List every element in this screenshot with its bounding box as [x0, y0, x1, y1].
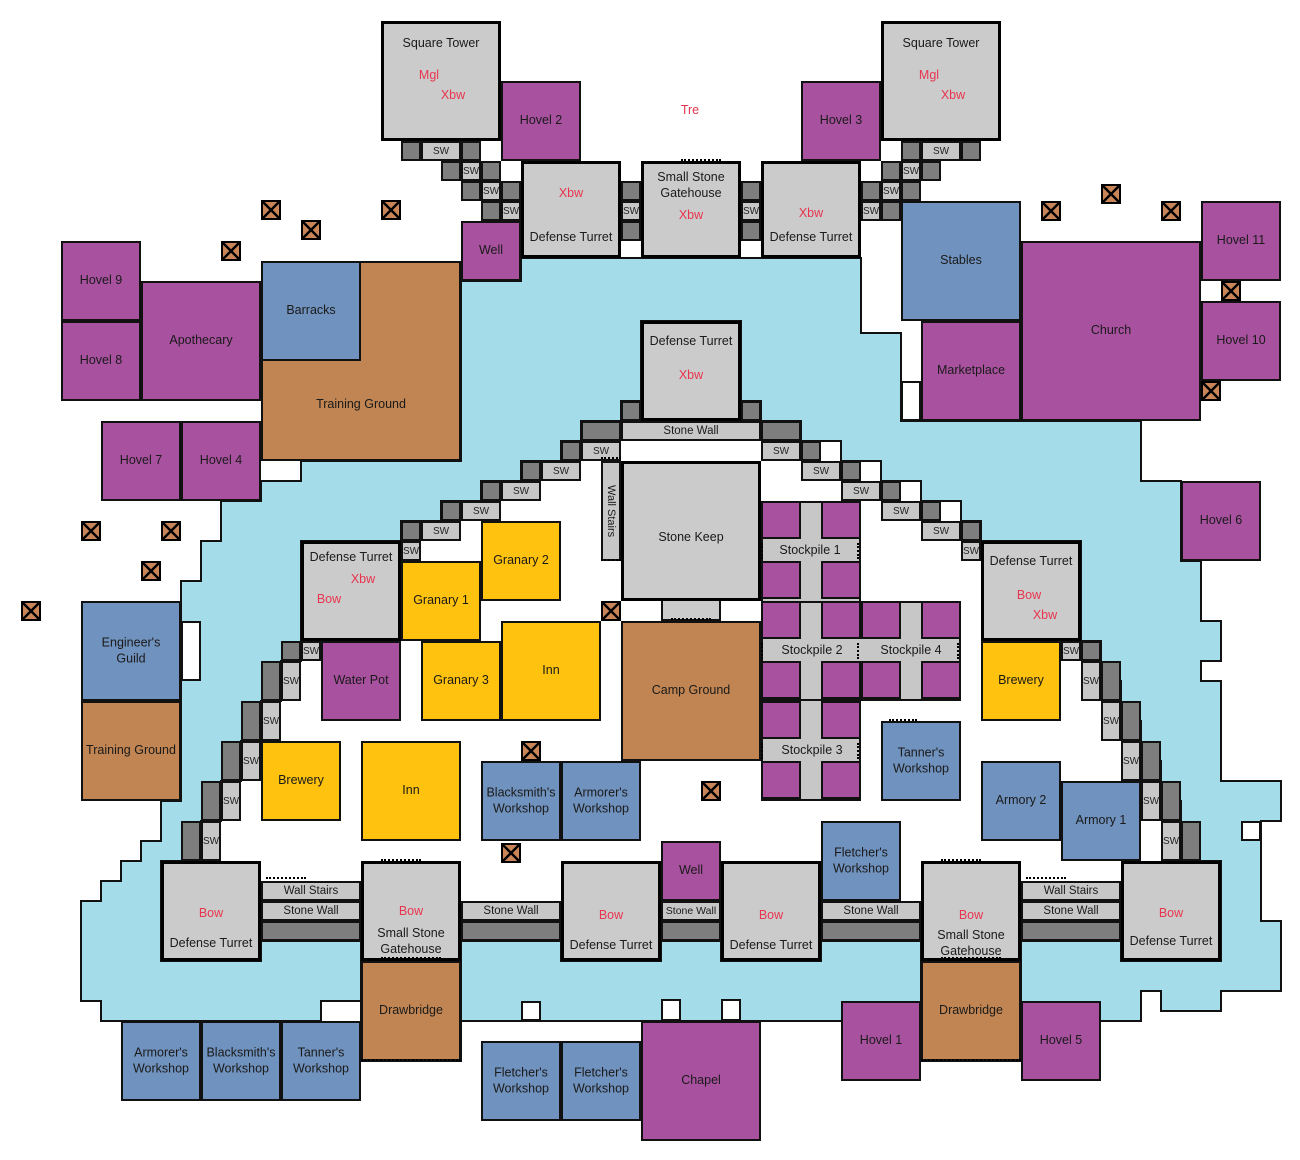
training-ground-w-label: Training Ground: [86, 743, 176, 759]
stockpile-1-label: Stockpile 1: [779, 543, 840, 557]
wall-tile-dark: [881, 481, 901, 501]
armory-2[interactable]: Armory 2: [981, 761, 1061, 841]
wall-tile-dark: [741, 181, 761, 201]
stockpile-goods-tile: [821, 701, 861, 739]
wall-tile-dark: [481, 201, 501, 221]
tre-label: Tre: [681, 103, 699, 117]
wall-tile-dark: [441, 501, 461, 521]
water-pot[interactable]: Water Pot: [321, 641, 401, 721]
wall-tile-sw: SW: [1061, 641, 1081, 661]
dotted-join: [761, 543, 763, 559]
wall-tile-dark: [901, 141, 921, 161]
wall-tile-sw: SW: [261, 701, 281, 741]
small-stone-gatehouse-s2-label: Small Stone Gatehouse: [927, 928, 1015, 959]
wall-tile-dark: [761, 421, 801, 441]
stone-wall-n: Stone Wall: [621, 421, 761, 441]
wall-tile-sw: SW: [481, 181, 501, 201]
defense-turret-w-label: Bow: [317, 592, 341, 608]
hovel-11[interactable]: Hovel 11: [1201, 201, 1281, 281]
chapel-label: Chapel: [681, 1073, 721, 1089]
water-pot-label: Water Pot: [333, 673, 388, 689]
training-ground-w[interactable]: Training Ground: [81, 701, 181, 801]
stone-wall-s2-label: Stone Wall: [483, 905, 538, 917]
inn-s-label: Inn: [402, 783, 419, 799]
stockpile-goods-tile: [861, 601, 901, 639]
marketplace-label: Marketplace: [937, 363, 1005, 379]
fletchers-workshop-s1-label: Fletcher's Workshop: [485, 1065, 556, 1096]
stone-wall-n-label: Stone Wall: [663, 425, 718, 437]
brewery-e-label: Brewery: [998, 673, 1044, 689]
wall-tile-sw: SW: [801, 461, 841, 481]
blacksmiths-workshop-c-label: Blacksmith's Workshop: [485, 785, 556, 816]
defense-turret-s3-label: Defense Turret: [730, 938, 813, 954]
square-tower-ne-label: Square Tower: [903, 36, 980, 52]
hovel-5[interactable]: Hovel 5: [1021, 1001, 1101, 1081]
stockpile-goods-tile: [761, 601, 801, 639]
dotted-join: [921, 1059, 1021, 1061]
dotted-join: [671, 618, 711, 620]
wall-dark-s3: [661, 921, 721, 941]
wall-tile-sw: SW: [221, 781, 241, 821]
hovel-2[interactable]: Hovel 2: [501, 81, 581, 161]
wood-cross-marker: [1221, 281, 1241, 301]
engineers-guild[interactable]: Engineer's Guild: [81, 601, 181, 701]
brewery-e[interactable]: Brewery: [981, 641, 1061, 721]
wall-tile-sw: SW: [421, 141, 461, 161]
hovel-11-label: Hovel 11: [1217, 233, 1265, 249]
inn-s[interactable]: Inn: [361, 741, 461, 841]
wall-dark-s1: [261, 921, 361, 941]
wall-dark-s4: [821, 921, 921, 941]
square-tower-nw-label: Square Tower: [403, 36, 480, 52]
stockpile-goods-tile: [821, 761, 861, 799]
wall-stairs-se: Wall Stairs: [1021, 881, 1121, 901]
wall-tile-dark: [181, 821, 201, 861]
wood-cross-marker: [221, 241, 241, 261]
inn-n[interactable]: Inn: [501, 621, 601, 721]
small-stone-gatehouse-s1[interactable]: BowSmall Stone Gatehouse: [361, 861, 461, 961]
wall-tile-sw: SW: [201, 821, 221, 861]
square-tower-nw-label: Xbw: [441, 88, 465, 104]
wall-tile-sw: SW: [241, 741, 261, 781]
camp-ground[interactable]: Camp Ground: [621, 621, 761, 761]
small-stone-gatehouse-s2[interactable]: BowSmall Stone Gatehouse: [921, 861, 1021, 961]
wall-tile-dark: [261, 661, 281, 701]
wall-tile-dark: [561, 441, 581, 461]
armory-1-label: Armory 1: [1076, 813, 1127, 829]
square-tower-ne-label: Xbw: [941, 88, 965, 104]
dotted-join: [361, 1059, 461, 1061]
wall-tile-dark: [501, 181, 521, 201]
stockpile-goods-tile: [761, 561, 801, 599]
apothecary-label: Apothecary: [169, 333, 232, 349]
brewery-w[interactable]: Brewery: [261, 741, 341, 821]
defense-turret-keep[interactable]: Defense TurretXbw: [641, 321, 741, 421]
wood-cross-marker: [1101, 184, 1121, 204]
wood-cross-marker: [21, 601, 41, 621]
dotted-join: [1026, 877, 1066, 879]
square-tower-nw-label: Mgl: [419, 68, 439, 84]
wood-cross-marker: [381, 200, 401, 220]
wall-tile-dark: [441, 161, 461, 181]
fletchers-workshop-e[interactable]: Fletcher's Workshop: [821, 821, 901, 901]
wall-tile-sw: SW: [461, 161, 481, 181]
stockpile-goods-tile: [761, 701, 801, 739]
wall-tile-dark: [481, 481, 501, 501]
armorers-workshop-s-label: Armorer's Workshop: [125, 1045, 196, 1076]
stables-label: Stables: [940, 253, 982, 269]
defense-turret-n2[interactable]: XbwDefense Turret: [761, 161, 861, 258]
wall-tile-dark: [1121, 701, 1141, 741]
stone-wall-s1-label: Stone Wall: [283, 905, 338, 917]
brewery-w-label: Brewery: [278, 773, 324, 789]
small-stone-gatehouse-n[interactable]: Small Stone GatehouseXbw: [641, 161, 741, 258]
wood-cross-marker: [1041, 201, 1061, 221]
defense-turret-n2-label: Xbw: [799, 206, 823, 222]
wall-dark-s2: [461, 921, 561, 941]
stockpile-goods-tile: [821, 561, 861, 599]
wall-tile-dark: [1161, 781, 1181, 821]
wall-tile-sw: SW: [301, 641, 321, 661]
granary-2[interactable]: Granary 2: [481, 521, 561, 601]
defense-turret-keep-label: Defense Turret: [650, 334, 733, 350]
defense-turret-keep-label: Xbw: [679, 368, 703, 384]
dotted-join: [601, 559, 621, 561]
wall-tile-dark: [621, 221, 641, 241]
land-patch: [1241, 821, 1261, 841]
wall-stairs-sw: Wall Stairs: [261, 881, 361, 901]
dotted-join: [857, 743, 859, 759]
wall-tile-sw: SW: [901, 161, 921, 181]
stone-wall-s1: Stone Wall: [261, 901, 361, 921]
dotted-join: [761, 643, 763, 659]
wall-tile-sw: SW: [421, 521, 461, 541]
wall-tile-dark: [961, 141, 981, 161]
wall-tile-dark: [621, 181, 641, 201]
stockpile-goods-tile: [821, 501, 861, 539]
defense-turret-s3-label: Bow: [759, 908, 783, 924]
hovel-2-label: Hovel 2: [520, 113, 562, 129]
wall-tile-dark: [461, 141, 481, 161]
fletchers-workshop-s2[interactable]: Fletcher's Workshop: [561, 1041, 641, 1121]
church[interactable]: Church: [1021, 241, 1201, 421]
stockpile-goods-tile: [821, 661, 861, 699]
barracks-label: Barracks: [286, 303, 335, 319]
dotted-join: [941, 859, 981, 861]
wood-cross-marker: [521, 741, 541, 761]
dotted-join: [266, 877, 306, 879]
apothecary[interactable]: Apothecary: [141, 281, 261, 401]
hovel-7[interactable]: Hovel 7: [101, 421, 181, 501]
dotted-join: [857, 643, 859, 659]
wall-tile-sw: SW: [921, 141, 961, 161]
small-stone-gatehouse-n-label: Small Stone Gatehouse: [647, 170, 735, 201]
defense-turret-w-label: Defense Turret: [310, 550, 393, 566]
wall-tile-sw: SW: [501, 481, 541, 501]
stone-keep[interactable]: Stone Keep: [621, 461, 761, 601]
well-n-label: Well: [479, 243, 503, 259]
tanners-workshop-e-label: Tanner's Workshop: [885, 745, 956, 776]
granary-3[interactable]: Granary 3: [421, 641, 501, 721]
stockpile-2-label: Stockpile 2: [781, 643, 842, 657]
land-patch: [181, 621, 201, 681]
wall-tile-sw: SW: [961, 541, 981, 561]
stockpile-4-label: Stockpile 4: [880, 643, 941, 657]
stone-wall-s4-label: Stone Wall: [843, 905, 898, 917]
defense-turret-s4-label: Bow: [1159, 906, 1183, 922]
wall-tile-dark: [621, 401, 641, 421]
armorers-workshop-c-label: Armorer's Workshop: [565, 785, 636, 816]
wall-tile-sw: SW: [621, 201, 641, 221]
wall-tile-dark: [401, 521, 421, 541]
drawbridge-s1[interactable]: Drawbridge: [361, 961, 461, 1061]
wall-tile-dark: [961, 521, 981, 541]
wood-cross-marker: [81, 521, 101, 541]
wall-tile-dark: [741, 401, 761, 421]
defense-turret-s2-label: Bow: [599, 908, 623, 924]
hovel-3-label: Hovel 3: [820, 113, 862, 129]
stone-wall-s5-label: Stone Wall: [1043, 905, 1098, 917]
square-tower-ne-label: Mgl: [919, 68, 939, 84]
wall-stairs-sw-label: Wall Stairs: [284, 885, 339, 897]
stockpile-3-label: Stockpile 3: [781, 743, 842, 757]
blacksmiths-workshop-s[interactable]: Blacksmith's Workshop: [201, 1021, 281, 1101]
wood-cross-marker: [301, 220, 321, 240]
hovel-1[interactable]: Hovel 1: [841, 1001, 921, 1081]
defense-turret-n1-label: Defense Turret: [530, 230, 613, 246]
defense-turret-e-label: Bow: [1017, 588, 1041, 604]
defense-turret-e[interactable]: Defense TurretBowXbw: [981, 541, 1081, 641]
chapel[interactable]: Chapel: [641, 1021, 761, 1141]
wall-tile-dark: [921, 501, 941, 521]
stone-wall-s3: Stone Wall: [661, 901, 721, 921]
drawbridge-s2-label: Drawbridge: [939, 1003, 1003, 1019]
wood-cross-marker: [1161, 201, 1181, 221]
wood-cross-marker: [141, 561, 161, 581]
inn-n-label: Inn: [542, 663, 559, 679]
hovel-6[interactable]: Hovel 6: [1181, 481, 1261, 561]
tanners-workshop-s[interactable]: Tanner's Workshop: [281, 1021, 361, 1101]
wall-tile-sw: SW: [1121, 741, 1141, 781]
wood-cross-marker: [261, 200, 281, 220]
wall-tile-sw: SW: [1161, 821, 1181, 861]
square-tower-nw[interactable]: Square TowerMglXbw: [381, 21, 501, 141]
wall-tile-sw: SW: [541, 461, 581, 481]
stone-wall-s3-label: Stone Wall: [666, 905, 716, 917]
wall-tile-dark: [481, 161, 501, 181]
dotted-join: [381, 859, 421, 861]
stockpile-goods-tile: [761, 761, 801, 799]
castle-map: Stone WallWall StairsWall StairsStone Wa…: [0, 0, 1300, 1160]
wall-stairs-keep-label: Wall Stairs: [605, 485, 617, 537]
wood-cross-marker: [601, 601, 621, 621]
land-patch: [901, 381, 921, 421]
hovel-4-label: Hovel 4: [200, 453, 242, 469]
well-s[interactable]: Well: [661, 841, 721, 901]
drawbridge-s2[interactable]: Drawbridge: [921, 961, 1021, 1061]
hovel-9[interactable]: Hovel 9: [61, 241, 141, 321]
hovel-8-label: Hovel 8: [80, 353, 122, 369]
fletchers-workshop-s2-label: Fletcher's Workshop: [565, 1065, 636, 1096]
wall-tile-dark: [281, 641, 301, 661]
small-stone-gatehouse-s1-label: Small Stone Gatehouse: [367, 926, 455, 957]
well-s-label: Well: [679, 863, 703, 879]
wood-cross-marker: [501, 843, 521, 863]
granary-1[interactable]: Granary 1: [401, 561, 481, 641]
hovel-7-label: Hovel 7: [120, 453, 162, 469]
granary-3-label: Granary 3: [433, 673, 489, 689]
wall-stairs-keep: Wall Stairs: [601, 461, 621, 561]
tanners-workshop-s-label: Tanner's Workshop: [285, 1045, 356, 1076]
wall-tile-sw: SW: [841, 481, 881, 501]
wall-dark-s5: [1021, 921, 1121, 941]
small-stone-gatehouse-s1-label: Bow: [399, 904, 423, 920]
wall-tile-dark: [241, 701, 261, 741]
defense-turret-s1-label: Bow: [199, 906, 223, 922]
dotted-join: [381, 957, 441, 959]
blacksmiths-workshop-c[interactable]: Blacksmith's Workshop: [481, 761, 561, 841]
church-label: Church: [1091, 323, 1131, 339]
wall-tile-dark: [1181, 821, 1201, 861]
training-ground-n-label: Training Ground: [316, 397, 406, 413]
barracks[interactable]: Barracks: [261, 261, 361, 361]
wall-tile-dark: [461, 181, 481, 201]
stone-wall-s4: Stone Wall: [821, 901, 921, 921]
blacksmiths-workshop-s-label: Blacksmith's Workshop: [205, 1045, 276, 1076]
wall-tile-sw: SW: [1081, 661, 1101, 701]
engineers-guild-label: Engineer's Guild: [86, 635, 176, 666]
hovel-4[interactable]: Hovel 4: [181, 421, 261, 501]
armory-1[interactable]: Armory 1: [1061, 781, 1141, 861]
wood-cross-marker: [161, 521, 181, 541]
defense-turret-s2[interactable]: BowDefense Turret: [561, 861, 661, 961]
wall-tile-dark: [1101, 661, 1121, 701]
defense-turret-n1[interactable]: XbwDefense Turret: [521, 161, 621, 258]
wall-tile-dark: [221, 741, 241, 781]
wall-tile-dark: [581, 421, 621, 441]
wall-tile-dark: [401, 141, 421, 161]
armory-2-label: Armory 2: [996, 793, 1047, 809]
wall-tile-dark: [901, 181, 921, 201]
wall-tile-sw: SW: [1101, 701, 1121, 741]
wall-tile-sw: SW: [461, 501, 501, 521]
wall-tile-sw: SW: [1141, 781, 1161, 821]
wall-tile-sw: SW: [281, 661, 301, 701]
square-tower-ne[interactable]: Square TowerMglXbw: [881, 21, 1001, 141]
dotted-join: [857, 543, 859, 559]
wall-tile-dark: [881, 161, 901, 181]
stockpile-goods-tile: [761, 501, 801, 539]
defense-turret-e-label: Xbw: [1033, 608, 1057, 624]
dotted-join: [601, 457, 621, 459]
dotted-join: [681, 159, 721, 161]
defense-turret-n2-label: Defense Turret: [770, 230, 853, 246]
defense-turret-s1[interactable]: BowDefense Turret: [161, 861, 261, 961]
small-stone-gatehouse-n-label: Xbw: [679, 208, 703, 224]
wall-tile-dark: [801, 441, 821, 461]
stone-keep-label: Stone Keep: [658, 530, 723, 546]
camp-ground-label: Camp Ground: [652, 683, 731, 699]
wall-tile-sw: SW: [741, 201, 761, 221]
wall-tile-dark: [1081, 641, 1101, 661]
stockpile-goods-tile: [761, 661, 801, 699]
stone-wall-s5: Stone Wall: [1021, 901, 1121, 921]
hovel-10[interactable]: Hovel 10: [1201, 301, 1281, 381]
defense-turret-w[interactable]: Defense TurretXbwBow: [301, 541, 401, 641]
wall-tile-dark: [921, 161, 941, 181]
stockpile-goods-tile: [861, 661, 901, 699]
hovel-9-label: Hovel 9: [80, 273, 122, 289]
stockpile-goods-tile: [921, 601, 961, 639]
stockpile-goods-tile: [821, 601, 861, 639]
land-patch: [721, 999, 741, 1021]
hovel-10-label: Hovel 10: [1216, 333, 1265, 349]
defense-turret-w-label: Xbw: [351, 572, 375, 588]
land-patch: [521, 1001, 541, 1021]
defense-turret-s3[interactable]: BowDefense Turret: [721, 861, 821, 961]
fletchers-workshop-e-label: Fletcher's Workshop: [825, 845, 896, 876]
small-stone-gatehouse-s2-label: Bow: [959, 908, 983, 924]
wall-tile-sw: SW: [881, 501, 921, 521]
defense-turret-s4[interactable]: BowDefense Turret: [1121, 861, 1221, 961]
wall-tile-sw: SW: [501, 201, 521, 221]
wall-tile-sw: SW: [921, 521, 961, 541]
wall-tile-dark: [201, 781, 221, 821]
wall-tile-sw: SW: [401, 541, 421, 561]
dotted-join: [941, 957, 1001, 959]
armorers-workshop-s[interactable]: Armorer's Workshop: [121, 1021, 201, 1101]
granary-1-label: Granary 1: [413, 593, 469, 609]
defense-turret-s1-label: Defense Turret: [170, 936, 253, 952]
wall-tile-dark: [741, 221, 761, 241]
wall-tile-dark: [1141, 741, 1161, 781]
hovel-1-label: Hovel 1: [860, 1033, 902, 1049]
well-n[interactable]: Well: [461, 221, 521, 281]
dotted-join: [761, 743, 763, 759]
dotted-join: [889, 719, 917, 721]
wall-tile-dark: [841, 461, 861, 481]
defense-turret-s4-label: Defense Turret: [1130, 934, 1213, 950]
wall-tile-sw: SW: [761, 441, 801, 461]
defense-turret-n1-label: Xbw: [559, 186, 583, 202]
wall-tile-sw: SW: [861, 201, 881, 221]
land-patch: [661, 999, 681, 1021]
wood-cross-marker: [1201, 381, 1221, 401]
granary-2-label: Granary 2: [493, 553, 549, 569]
hovel-8[interactable]: Hovel 8: [61, 321, 141, 401]
wall-stairs-se-label: Wall Stairs: [1044, 885, 1099, 897]
dotted-join: [957, 643, 959, 659]
hovel-6-label: Hovel 6: [1200, 513, 1242, 529]
marketplace[interactable]: Marketplace: [921, 321, 1021, 421]
wall-tile-dark: [861, 181, 881, 201]
hovel-3[interactable]: Hovel 3: [801, 81, 881, 161]
defense-turret-s2-label: Defense Turret: [570, 938, 653, 954]
armorers-workshop-c[interactable]: Armorer's Workshop: [561, 761, 641, 841]
stables[interactable]: Stables: [901, 201, 1021, 321]
tanners-workshop-e[interactable]: Tanner's Workshop: [881, 721, 961, 801]
stone-wall-s2: Stone Wall: [461, 901, 561, 921]
wood-cross-marker: [701, 781, 721, 801]
drawbridge-s1-label: Drawbridge: [379, 1003, 443, 1019]
defense-turret-e-label: Defense Turret: [990, 554, 1073, 570]
wall-tile-dark: [521, 461, 541, 481]
hovel-5-label: Hovel 5: [1040, 1033, 1082, 1049]
wall-tile-dark: [881, 201, 901, 221]
wall-tile-sw: SW: [881, 181, 901, 201]
stockpile-goods-tile: [921, 661, 961, 699]
fletchers-workshop-s1[interactable]: Fletcher's Workshop: [481, 1041, 561, 1121]
